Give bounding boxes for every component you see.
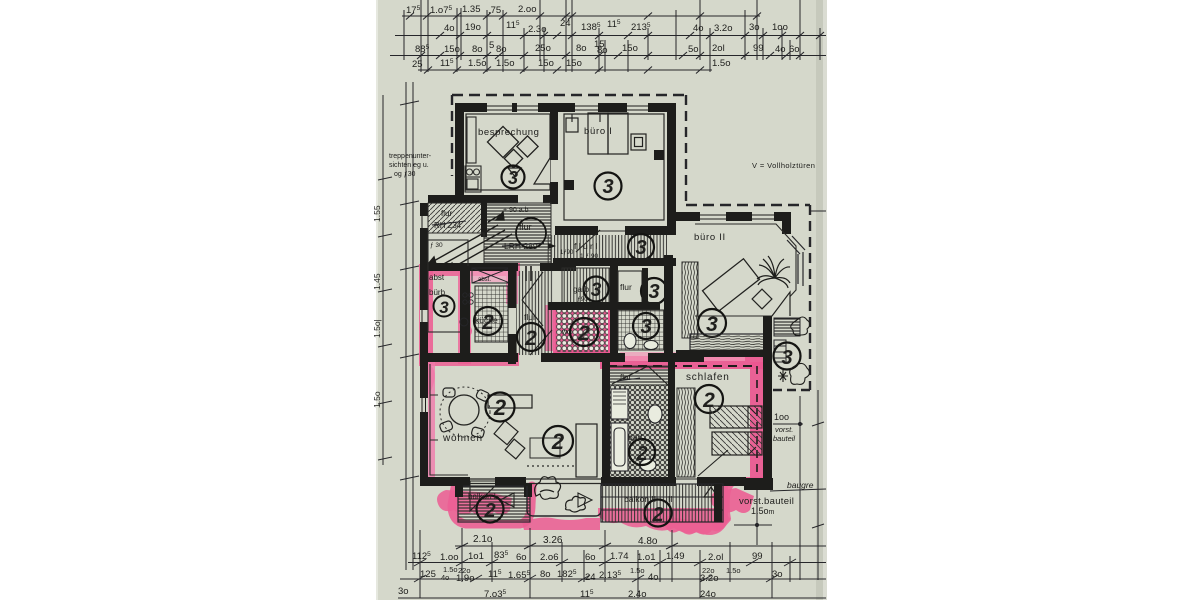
svg-text:2: 2 (524, 327, 537, 350)
svg-text:büro I: büro I (584, 126, 613, 137)
svg-text:2: 2 (493, 395, 507, 420)
svg-text:8o: 8o (597, 45, 608, 56)
svg-text:vorst.: vorst. (775, 425, 793, 434)
svg-text:3: 3 (508, 168, 518, 188)
svg-text:3: 3 (706, 313, 718, 336)
svg-text:8o: 8o (540, 569, 551, 580)
svg-text:2: 2 (551, 429, 565, 454)
svg-text:1.5o|: 1.5o| (372, 319, 382, 338)
svg-text:3: 3 (781, 347, 792, 369)
svg-text:2.oo: 2.oo (518, 4, 537, 15)
svg-text:2: 2 (635, 443, 647, 465)
svg-text:baugre: baugre (787, 480, 814, 490)
svg-text:15o: 15o (622, 43, 638, 54)
svg-text:1.5o: 1.5o (726, 566, 741, 575)
svg-text:4o: 4o (693, 23, 704, 34)
svg-text:bauteil: bauteil (773, 434, 795, 443)
svg-text:abst: abst (429, 273, 445, 282)
svg-text:V = Vollholztüren: V = Vollholztüren (752, 161, 815, 170)
svg-text:1.5o: 1.5o (712, 58, 731, 69)
svg-text:2.ol: 2.ol (708, 552, 723, 563)
svg-text:1.5o: 1.5o (630, 566, 645, 575)
svg-text:küche: küche (475, 315, 498, 325)
svg-text:sichten eg u.: sichten eg u. (389, 162, 429, 169)
svg-text:ƒ 30: ƒ 30 (430, 242, 443, 249)
svg-text:5o: 5o (688, 44, 699, 55)
svg-text:2ol: 2ol (712, 43, 725, 54)
svg-text:24: 24 (560, 18, 571, 29)
svg-text:schlafen: schlafen (686, 372, 730, 383)
svg-text:24o: 24o (700, 589, 716, 600)
svg-text:LRH 289: LRH 289 (504, 241, 538, 251)
svg-text:og ƒ30: og ƒ30 (394, 171, 416, 178)
svg-text:2: 2 (651, 504, 663, 526)
svg-text:4o: 4o (775, 44, 786, 55)
svg-text:15o: 15o (566, 58, 582, 69)
svg-text:4o: 4o (441, 573, 449, 582)
svg-text:besprechung: besprechung (478, 127, 540, 138)
svg-text:3.2o: 3.2o (714, 23, 733, 34)
svg-text:flur: flur (620, 282, 632, 292)
svg-text:f l u r I: f l u r I (574, 241, 598, 251)
svg-text:II: II (668, 495, 672, 504)
svg-text:99: 99 (752, 551, 763, 562)
svg-text:3o: 3o (749, 22, 760, 33)
svg-text:wohnen: wohnen (442, 433, 483, 444)
svg-text:19o: 19o (465, 22, 481, 33)
svg-text:2.o6: 2.o6 (540, 552, 559, 563)
svg-text:8o: 8o (576, 43, 587, 54)
svg-text:8o: 8o (472, 44, 483, 55)
svg-text:1.49: 1.49 (666, 551, 685, 562)
svg-text:4o: 4o (648, 572, 659, 583)
svg-text:4.8o: 4.8o (638, 536, 658, 547)
svg-text:bad: bad (628, 432, 642, 442)
svg-text:25: 25 (412, 59, 423, 70)
svg-text:2: 2 (577, 322, 590, 345)
svg-text:flur: flur (519, 222, 532, 232)
svg-text:3: 3 (648, 281, 659, 303)
svg-text:8o: 8o (496, 44, 507, 55)
svg-text:,75: ,75 (488, 5, 501, 16)
svg-text:1.o1: 1.o1 (637, 552, 656, 563)
svg-text:1 ƒ 90: 1 ƒ 90 (580, 253, 598, 260)
svg-text:+ 90 a.b: + 90 a.b (503, 207, 529, 214)
svg-text:15o: 15o (444, 44, 460, 55)
svg-text:1.9o: 1.9o (456, 573, 475, 584)
svg-text:2.4o: 2.4o (628, 589, 647, 600)
svg-text:treppenunter-: treppenunter- (389, 153, 432, 160)
svg-text:3o: 3o (398, 586, 409, 597)
svg-text:5: 5 (489, 40, 494, 51)
svg-text:99: 99 (753, 43, 764, 54)
svg-text:3: 3 (591, 280, 602, 301)
svg-text:2: 2 (483, 500, 495, 522)
svg-text:3: 3 (635, 237, 646, 259)
svg-text:1.45: 1.45 (372, 273, 382, 290)
svg-text:25o: 25o (535, 43, 551, 54)
svg-text:1.55: 1.55 (372, 205, 382, 222)
svg-text:24: 24 (585, 572, 596, 583)
svg-text:1o1: 1o1 (468, 551, 484, 562)
svg-text:3: 3 (640, 316, 651, 338)
svg-text:3: 3 (439, 298, 449, 317)
svg-text:1.5o: 1.5o (496, 58, 515, 69)
svg-text:125: 125 (420, 569, 436, 580)
svg-text:flur: flur (524, 312, 536, 322)
svg-text:15o: 15o (538, 58, 554, 69)
svg-text:garb: garb (573, 285, 590, 294)
svg-text:1.oo: 1.oo (440, 552, 459, 563)
svg-text:bürb: bürb (429, 288, 446, 297)
svg-text:2.3o: 2.3o (528, 24, 547, 35)
svg-text:balkon L: balkon L (468, 492, 499, 501)
svg-text:6o: 6o (516, 552, 527, 563)
svg-text:wc: wc (561, 329, 571, 336)
svg-text:1oo: 1oo (772, 22, 788, 33)
svg-text:1.35: 1.35 (462, 4, 481, 15)
svg-text:1.74: 1.74 (610, 551, 629, 562)
svg-text:3.2o: 3.2o (700, 573, 719, 584)
svg-text:3: 3 (602, 176, 613, 198)
svg-text:6o: 6o (585, 552, 596, 563)
svg-text:1ƒ90: 1ƒ90 (560, 250, 574, 256)
svg-text:1.5o: 1.5o (372, 391, 382, 408)
svg-text:3o: 3o (772, 569, 783, 580)
svg-text:6o: 6o (789, 44, 800, 55)
svg-text:ƒ90: ƒ90 (577, 296, 588, 303)
svg-text:4o: 4o (444, 23, 455, 34)
svg-text:1oo: 1oo (774, 412, 789, 422)
svg-text:2.1o: 2.1o (473, 534, 493, 545)
svg-text:3.26: 3.26 (543, 535, 563, 546)
svg-text:büro II: büro II (694, 232, 726, 243)
svg-text:flur: flur (441, 209, 452, 218)
svg-text:abst.: abst. (478, 277, 491, 283)
svg-text:1.5o: 1.5o (468, 58, 487, 69)
svg-text:balkon II: balkon II (624, 494, 656, 504)
